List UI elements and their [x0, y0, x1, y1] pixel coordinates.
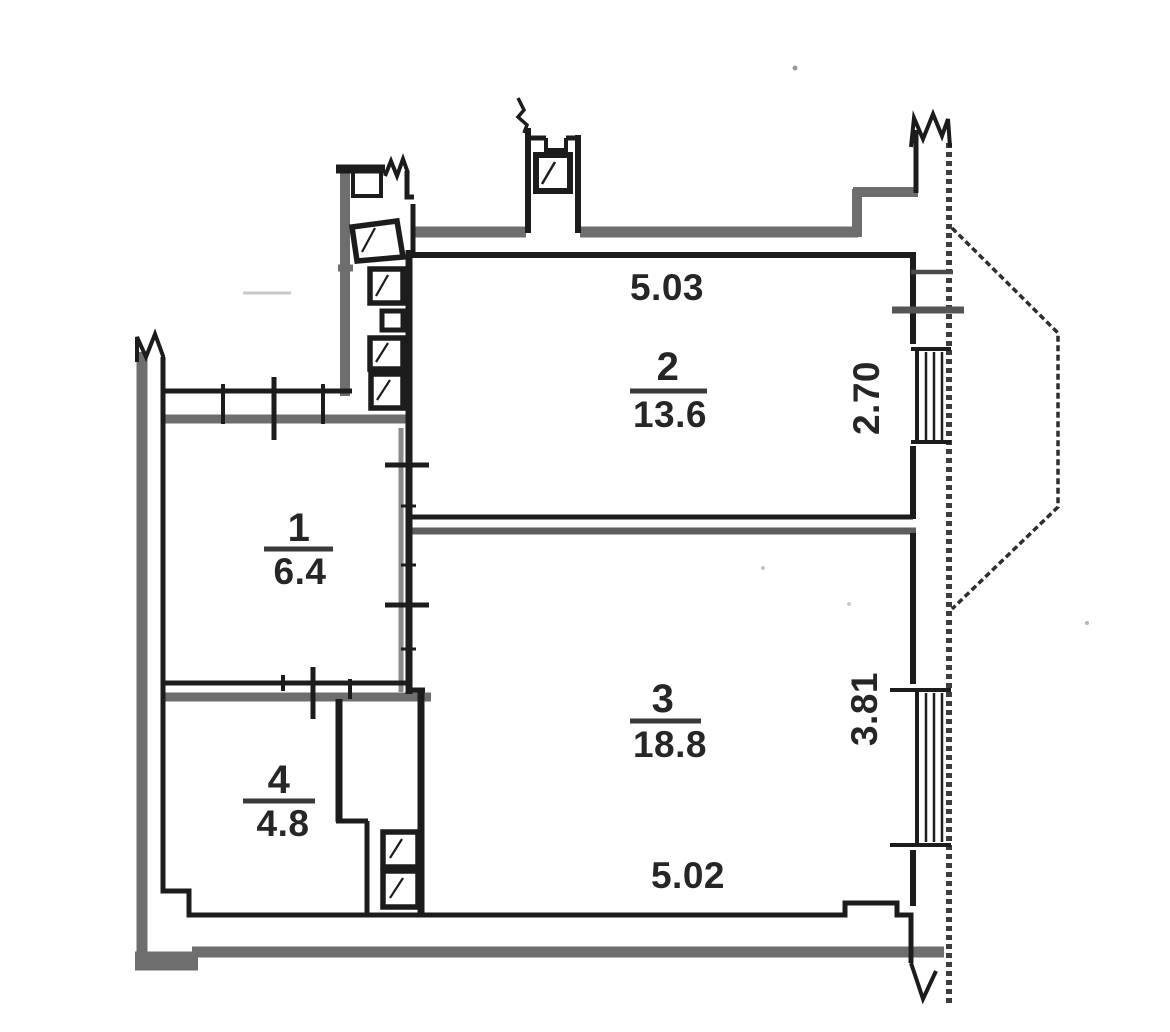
- room4-area: 4.8: [257, 803, 310, 844]
- vent-box-4: [370, 338, 403, 369]
- room1-number: 1: [288, 506, 311, 550]
- chimney-middle: [518, 98, 581, 233]
- dimension-room2-width: 5.03: [630, 267, 704, 308]
- scan-speck-4: [847, 602, 851, 606]
- scan-speck-1: [793, 66, 798, 71]
- room2-number: 2: [657, 345, 680, 389]
- chimney-middle-vent-box: [536, 155, 570, 191]
- chimney-middle-break-squiggle: [518, 98, 527, 133]
- scan-speck-2: [1085, 621, 1089, 625]
- room2-label: 2 13.6: [630, 345, 707, 435]
- vent-box-2: [370, 269, 403, 303]
- room4-number: 4: [268, 758, 291, 802]
- room1-area: 6.4: [274, 551, 327, 592]
- room1-label: 1 6.4: [264, 506, 333, 592]
- floor-plan-page: 1 6.4 2 13.6 3 18.8 4 4.8 5.03 2.70 3.81…: [0, 0, 1170, 1032]
- chimney-middle-notch: [546, 138, 566, 150]
- room3-area: 18.8: [633, 724, 707, 765]
- room4-label: 4 4.8: [243, 758, 315, 844]
- dimension-room3-depth: 3.81: [844, 672, 885, 746]
- scan-speck-3: [761, 566, 765, 570]
- break-marks: [137, 114, 950, 999]
- dimension-room3-width: 5.02: [651, 855, 725, 896]
- break-mark-bottom-right: [911, 963, 936, 999]
- room3-label: 3 18.8: [630, 677, 707, 765]
- chimney-left-right-edge: [407, 171, 414, 197]
- room2-area: 13.6: [633, 394, 707, 435]
- floor-plan-svg: 1 6.4 2 13.6 3 18.8 4 4.8 5.03 2.70 3.81…: [0, 0, 1170, 1032]
- vent-box-lower-2: [383, 871, 418, 907]
- vent-box-3-small: [382, 311, 403, 330]
- chimney-left-notch: [353, 173, 381, 196]
- vent-box-1: [352, 221, 403, 261]
- room3-number: 3: [652, 677, 675, 721]
- vent-box-lower-1: [383, 832, 418, 867]
- dimension-room2-depth: 2.70: [846, 361, 887, 435]
- wall-left-inner-and-bottom: [163, 357, 911, 963]
- vent-box-5: [371, 374, 403, 408]
- balcony-outline: [952, 228, 1058, 609]
- window-room1-marks: [223, 377, 323, 440]
